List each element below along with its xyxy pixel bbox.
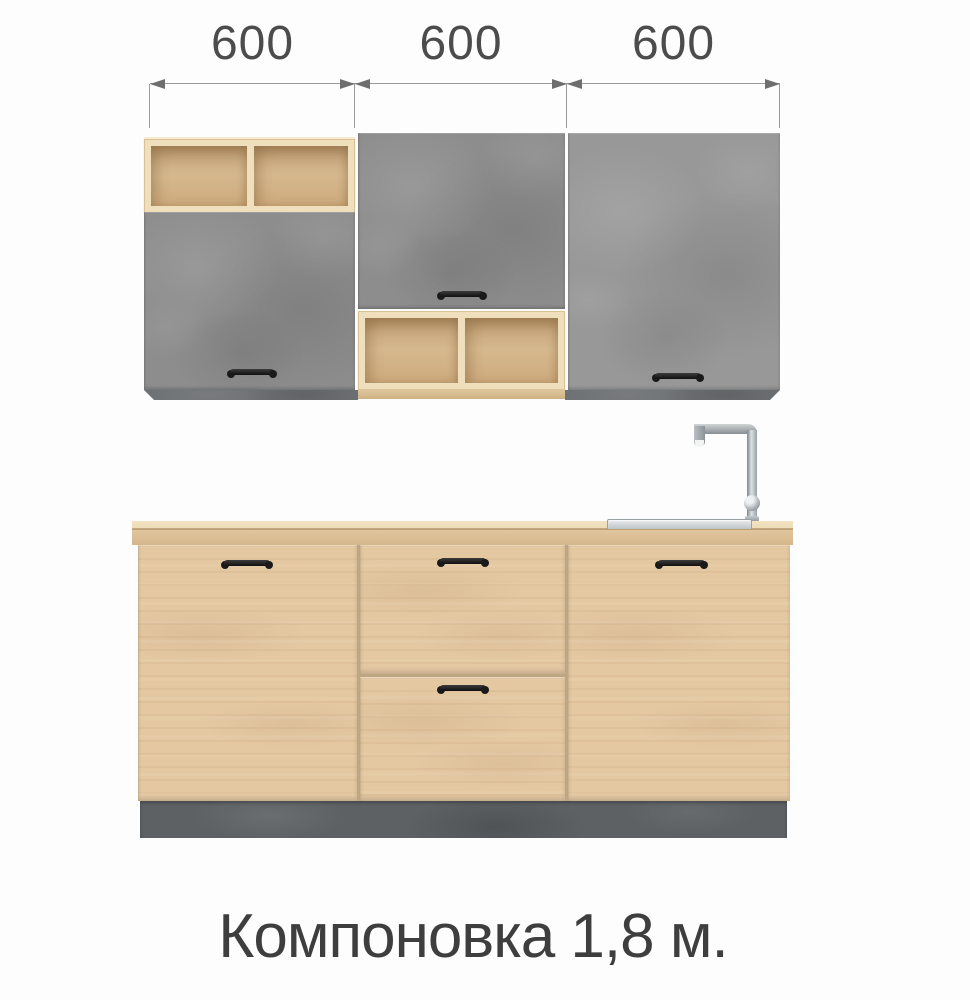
faucet [690, 420, 770, 525]
wall-open-shelf [144, 137, 355, 213]
drawer-front [360, 545, 565, 674]
faucet-pipe [747, 430, 757, 526]
shelf-compartment [465, 318, 558, 383]
wall-open-shelf [358, 311, 565, 390]
cabinet-underside [358, 390, 565, 399]
wall-cabinet-door [358, 133, 565, 309]
door-handle [652, 373, 704, 383]
door-handle [437, 291, 487, 301]
plinth [140, 801, 787, 838]
shelf-compartment [365, 318, 458, 383]
base-cabinet-row [138, 545, 790, 801]
drawer-handle [437, 558, 489, 569]
door-handle [227, 369, 277, 379]
base-cabinet-door [138, 545, 357, 801]
shelf-compartment [254, 146, 348, 206]
kitchen-product-image: 600 600 600 [0, 0, 970, 1000]
drawer-handle [437, 685, 489, 696]
faucet-spout-tip [695, 440, 704, 447]
base-cabinet-door [568, 545, 790, 801]
drawer-front [360, 677, 565, 801]
shelf-compartment [151, 146, 247, 206]
cabinet-underside [565, 390, 780, 400]
door-handle [655, 560, 708, 571]
cabinet-underside [144, 390, 358, 400]
wall-cabinet-door [568, 133, 780, 390]
wall-cabinet-door [144, 212, 355, 390]
faucet-joint [744, 495, 760, 511]
door-handle [221, 560, 273, 571]
countertop-edge [132, 529, 793, 545]
caption: Компоновка 1,8 м. [0, 901, 946, 972]
wall-cabinet-row [0, 0, 970, 410]
